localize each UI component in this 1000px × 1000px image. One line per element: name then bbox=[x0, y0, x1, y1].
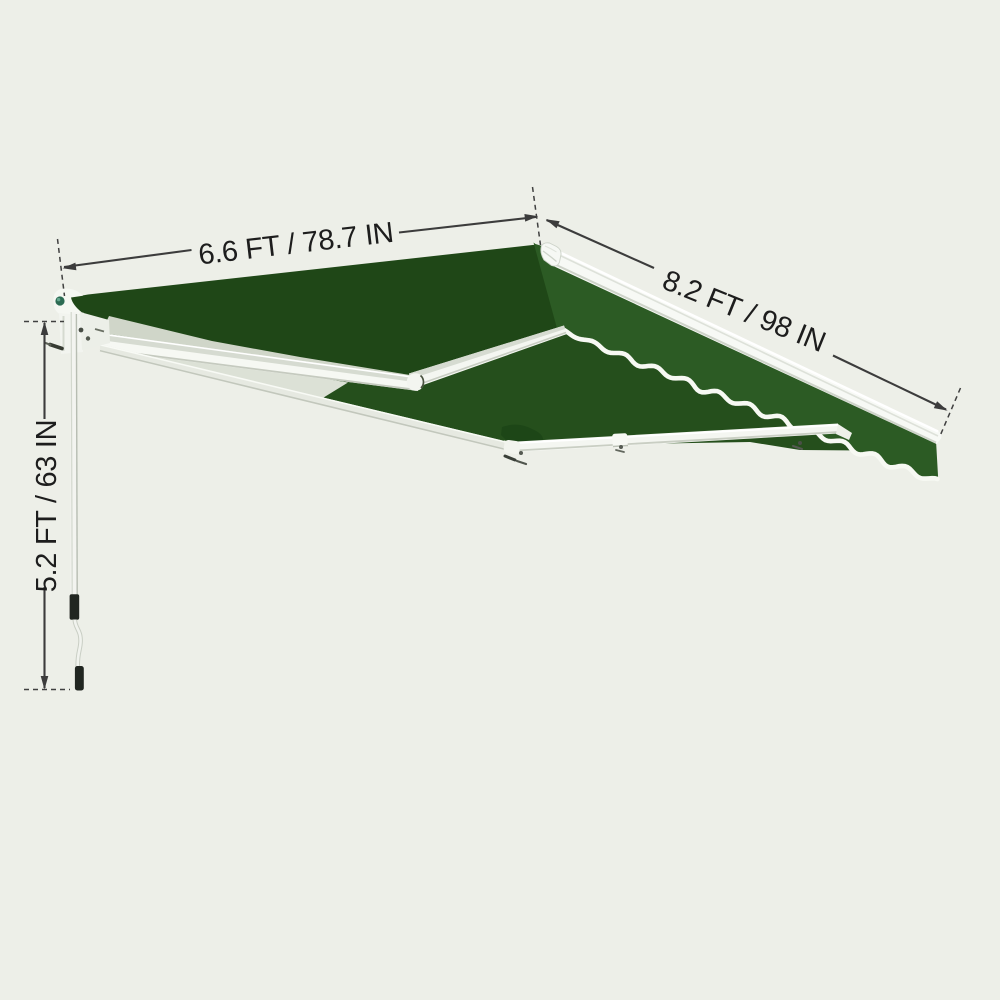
svg-text:5.2 FT / 63 IN: 5.2 FT / 63 IN bbox=[31, 420, 63, 593]
